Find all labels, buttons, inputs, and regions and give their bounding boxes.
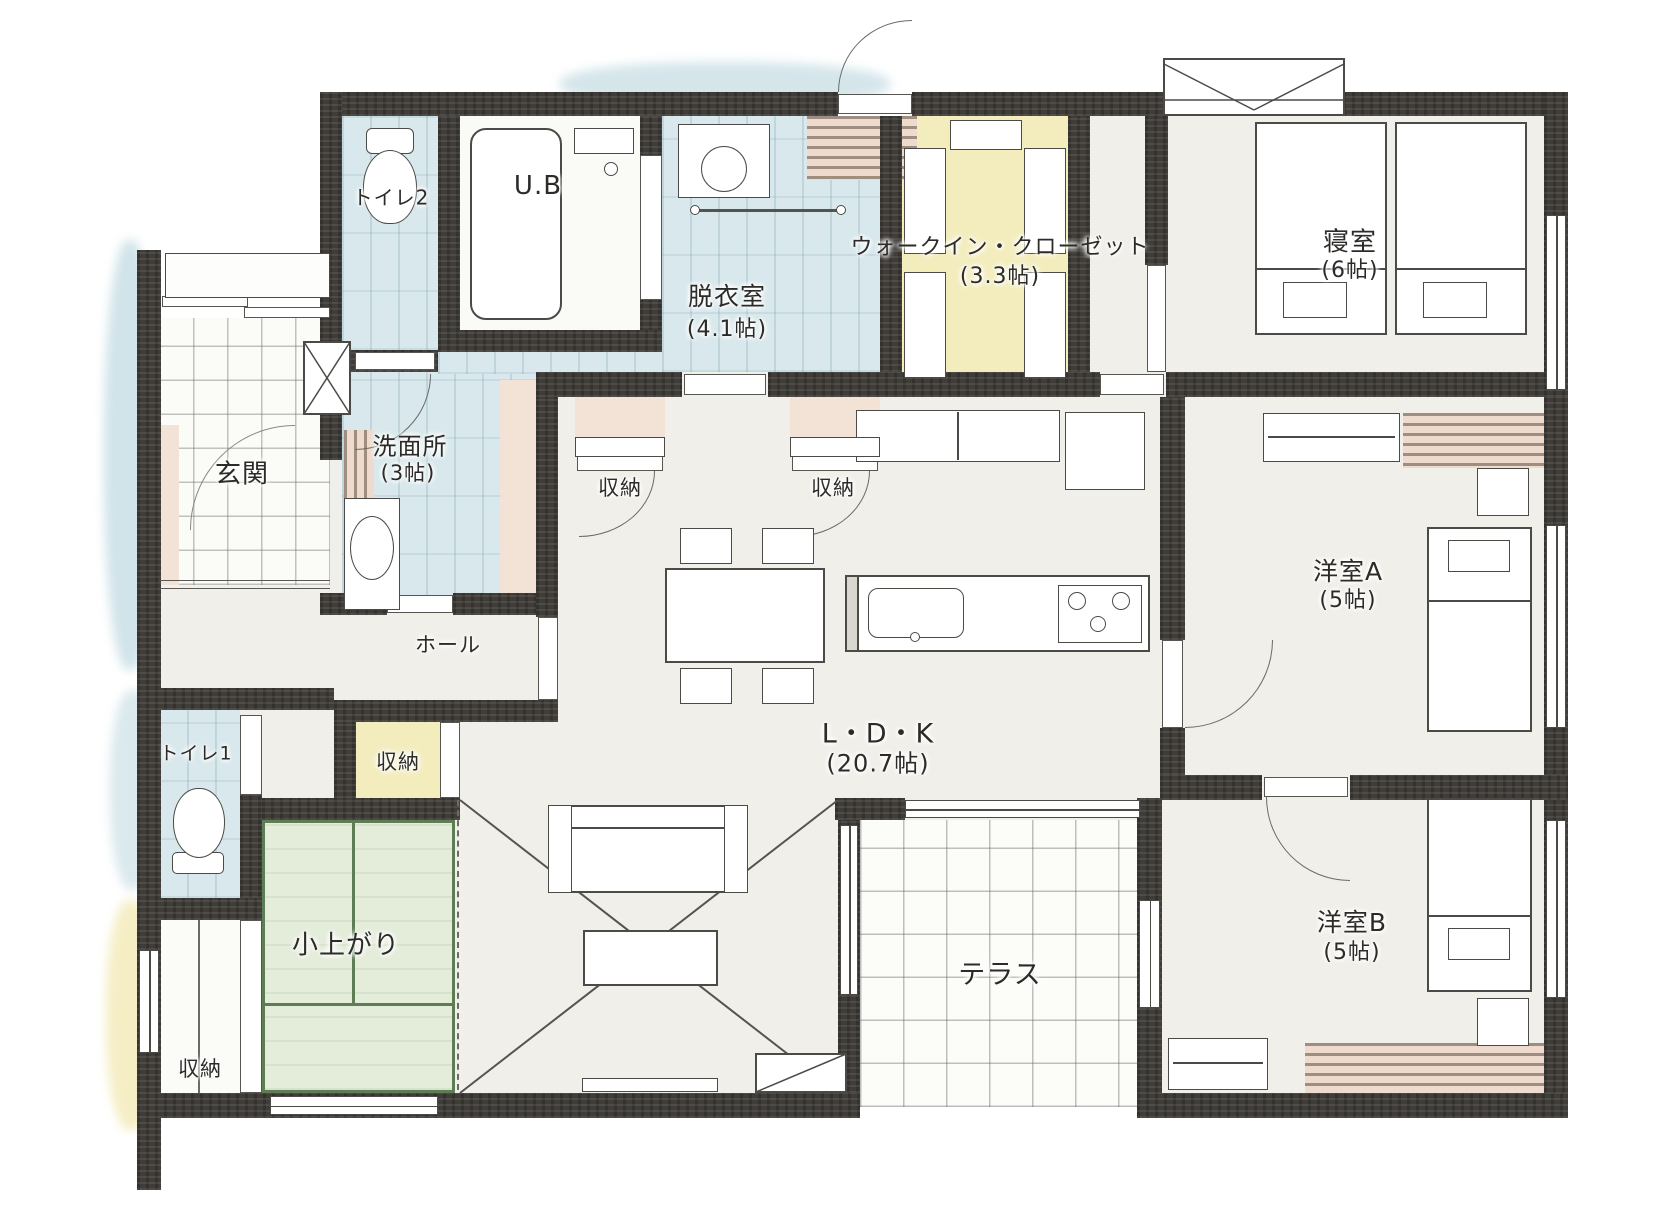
washroom-accent	[500, 380, 536, 605]
bed-room-a-pillow	[1448, 540, 1510, 572]
window-left-storage	[139, 950, 159, 1053]
wall-terrace-north-west	[835, 798, 905, 820]
wall-top-b	[912, 92, 1163, 116]
label-dressing-room: 脱衣室	[688, 277, 766, 313]
wall-tatami-north	[262, 798, 460, 820]
wall-toilet1-north	[137, 688, 334, 710]
shower-head-icon	[604, 162, 618, 176]
nightstand-room-a	[1477, 468, 1529, 516]
wic-shelf-left-2	[904, 272, 946, 378]
label-tatami-corner: 小上がり	[292, 925, 400, 962]
closet-room-b-pole	[1173, 1062, 1263, 1064]
bathtub-icon	[470, 128, 562, 320]
dining-table	[665, 568, 825, 663]
wall-a-b-divider-east	[1350, 775, 1568, 800]
entrance-accent	[159, 425, 179, 585]
window-tatami-south	[270, 1096, 438, 1115]
door-pantry-a	[577, 455, 663, 471]
window-room-a-east	[1546, 525, 1566, 728]
closet-room-b	[1168, 1038, 1268, 1090]
wall-top-a	[320, 92, 838, 116]
pantry-b-shelf	[790, 437, 880, 457]
stove-burner-1	[1068, 592, 1086, 610]
towel-bar-end-left	[690, 205, 700, 215]
nightstand-room-b	[1477, 998, 1529, 1046]
bed-master-2-line	[1397, 268, 1525, 270]
stove-burner-3	[1090, 616, 1106, 632]
entrance-door-panel-2	[244, 307, 330, 318]
kitchen-back-counter-divider	[957, 412, 959, 460]
bath-counter	[574, 128, 634, 154]
door-dressing-kitchen	[684, 374, 766, 395]
door-tatami-storage	[440, 722, 460, 798]
label-western-room-b-size: (5帖)	[1323, 934, 1380, 966]
tatami-step-edge	[457, 800, 459, 1090]
wall-washroom-east	[536, 397, 558, 617]
tatami-mat-line-h	[265, 1003, 452, 1006]
refrigerator-icon	[1065, 412, 1145, 490]
label-hall: ホール	[415, 629, 481, 659]
coffee-table	[583, 930, 718, 986]
tv-board	[582, 1078, 718, 1092]
washing-machine-drum	[701, 146, 747, 192]
sofa-arm-left	[548, 805, 572, 893]
wall-ub-south	[438, 330, 662, 352]
door-toilet2	[355, 352, 435, 370]
label-ldk-size: (20.7帖)	[826, 744, 929, 779]
dining-chair-4	[762, 668, 814, 704]
stove-burner-2	[1112, 592, 1130, 610]
wall-bottom-right-run	[1137, 1093, 1568, 1118]
label-terrace: テラス	[958, 953, 1041, 992]
door-hall-ldk	[538, 617, 558, 700]
wall-tatami-storage-west	[334, 722, 356, 798]
wood-deck-room-a	[1403, 413, 1544, 468]
door-bedroom	[1100, 374, 1164, 395]
label-wic: ウォークイン・クローゼット	[850, 229, 1149, 261]
door-dressing-exterior-arc	[838, 20, 912, 92]
kitchen-faucet-icon	[910, 632, 920, 642]
towel-bar-icon	[695, 209, 841, 212]
wic-shelf-top	[950, 120, 1022, 150]
window-terrace-east	[1139, 900, 1160, 1008]
washroom-corridor-floor	[438, 352, 662, 374]
kitchen-island-end	[845, 575, 859, 652]
toilet1-bowl-icon	[173, 788, 225, 858]
dining-chair-2	[762, 528, 814, 564]
wall-toilet1-south	[137, 898, 262, 920]
wall-room-a-west-upper	[1160, 397, 1185, 640]
corner-tv-stand-icon	[755, 1053, 847, 1093]
label-pantry-b: 収納	[811, 472, 855, 502]
closet-room-a-pole	[1268, 436, 1395, 438]
wall-kitchen-north-a	[536, 372, 682, 397]
dining-chair-1	[680, 528, 732, 564]
window-ldk-terrace	[905, 800, 1140, 818]
pantry-a-shelf	[575, 437, 665, 457]
towel-bar-end-right	[836, 205, 846, 215]
window-bedroom-east	[1546, 215, 1566, 390]
wall-room-a-west-lower	[1160, 728, 1185, 775]
bed-master-2-pillow	[1423, 282, 1487, 318]
bedroom-shutter-box-icon	[1163, 58, 1345, 116]
shoe-cabinet-icon	[303, 341, 351, 415]
label-unit-bath: U.B	[514, 171, 562, 201]
label-pantry-a: 収納	[598, 472, 642, 502]
door-dressing-exterior	[838, 94, 912, 114]
wall-toilet1-east-lower	[240, 795, 262, 898]
door-room-a	[1162, 640, 1183, 728]
door-unit-bath	[640, 155, 662, 300]
sofa-arm-right	[724, 805, 748, 893]
wall-toilet2-ub	[438, 116, 460, 352]
door-room-b	[1264, 777, 1348, 797]
label-wic-size: (3.3帖)	[960, 258, 1040, 290]
label-tatami-storage: 収納	[376, 746, 420, 776]
window-terrace-west	[840, 825, 858, 995]
label-toilet2: トイレ2	[353, 182, 430, 211]
kitchen-sink-icon	[868, 588, 964, 638]
wall-bottom-left-run	[137, 1093, 860, 1118]
wall-hall-south	[334, 700, 558, 722]
bed-room-b	[1427, 798, 1532, 992]
wall-washroom-south-b	[453, 593, 536, 615]
wall-bedroom-south	[1166, 372, 1568, 397]
label-entrance: 玄関	[215, 454, 269, 491]
label-western-room-a-size: (5帖)	[1319, 582, 1376, 614]
vanity-basin-icon	[350, 516, 394, 580]
bed-room-a-line	[1429, 600, 1530, 602]
label-toilet1: トイレ1	[159, 739, 232, 766]
sofa-back-line	[550, 827, 746, 829]
floorplan-canvas: トイレ2 U.B 脱衣室 (4.1帖) ウォークイン・クローゼット (3.3帖)…	[0, 0, 1659, 1207]
bed-room-b-line	[1429, 915, 1530, 917]
label-master-bedroom-size: (6帖)	[1321, 252, 1378, 284]
label-washroom-size: (3帖)	[381, 457, 436, 487]
wood-deck-room-b	[1305, 1043, 1544, 1093]
entrance-porch-slab	[165, 253, 330, 298]
door-storage-west-slide	[240, 920, 262, 1093]
window-room-b-east	[1546, 820, 1566, 998]
door-toilet1	[240, 715, 262, 795]
bed-master-1-pillow	[1283, 282, 1347, 318]
sofa	[548, 805, 748, 893]
entrance-step-line	[159, 580, 330, 589]
door-bedroom-west-slide	[1147, 265, 1166, 372]
dining-chair-3	[680, 668, 732, 704]
tatami-mat-line-v	[352, 823, 355, 1005]
wall-a-b-divider-west	[1160, 775, 1262, 800]
label-storage-west: 収納	[178, 1053, 222, 1083]
label-dressing-room-size: (4.1帖)	[687, 311, 767, 343]
bed-room-b-pillow	[1448, 928, 1510, 960]
